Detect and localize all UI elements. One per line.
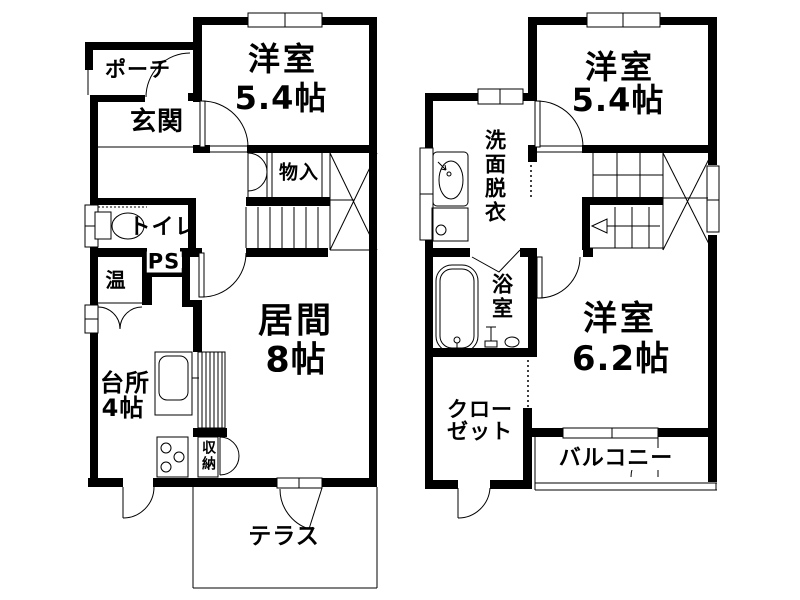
shuno-door-arc <box>220 456 239 475</box>
heater-door-arc <box>98 307 120 329</box>
label-kitchen: 台所 <box>100 371 150 395</box>
kitchen-door-arc <box>123 487 154 518</box>
stairs-arrow-head <box>592 219 607 233</box>
label-bathroom: 浴室 <box>490 273 513 321</box>
label-western-room-1f: 洋室 <box>248 43 318 75</box>
label-western-room-62: 洋室 <box>583 302 657 336</box>
shower-stool-icon <box>485 327 519 347</box>
floor2-windows <box>420 13 719 438</box>
label-porch: ポーチ <box>105 60 171 81</box>
kitchen-sink-icon <box>155 352 199 415</box>
washing-machine-icon <box>432 208 468 241</box>
vanity-sink-icon <box>433 152 468 206</box>
bathtub-icon <box>436 265 478 352</box>
label-balcony: バルコニー <box>558 448 675 470</box>
label-western-room-2f-size: 5.4帖 <box>572 84 665 116</box>
shuno-door-arc <box>220 437 239 456</box>
stove-icon <box>157 437 188 477</box>
label-toilet: トイレ <box>128 217 197 239</box>
western-room-62-door-arc <box>539 257 580 298</box>
label-living-size: 8帖 <box>265 344 326 379</box>
refrigerator-icon <box>198 352 225 428</box>
label-storage-shuno: 収納 <box>200 440 216 472</box>
floor-plan-canvas <box>0 0 800 600</box>
bathroom-folding-door <box>472 250 520 272</box>
floor1-plan <box>85 13 377 588</box>
living-door-arc <box>202 253 246 297</box>
label-water-heater: 温 <box>105 270 128 290</box>
floor-plan-page: ポーチ 玄関 洋室 5.4帖 物入 トイレ PS 温 居間 8帖 台所 4帖 収… <box>0 0 800 600</box>
label-closet-line2: ゼット <box>447 422 513 443</box>
label-kitchen-size: 4帖 <box>102 396 145 420</box>
label-western-room-2f: 洋室 <box>585 51 655 83</box>
label-entrance: 玄関 <box>130 109 184 135</box>
label-washroom: 洗面脱衣 <box>484 129 505 225</box>
label-closet-line1: クロー <box>447 400 513 421</box>
label-storage-mono: 物入 <box>278 164 320 183</box>
label-terrace: テラス <box>248 526 320 549</box>
closet-door-arc <box>458 488 490 518</box>
label-pipe-space: PS <box>147 252 182 273</box>
label-western-room-62-size: 6.2帖 <box>572 342 670 376</box>
label-western-room-1f-size: 5.4帖 <box>235 82 328 114</box>
heater-door-arc <box>120 307 142 329</box>
label-living: 居間 <box>258 305 334 340</box>
